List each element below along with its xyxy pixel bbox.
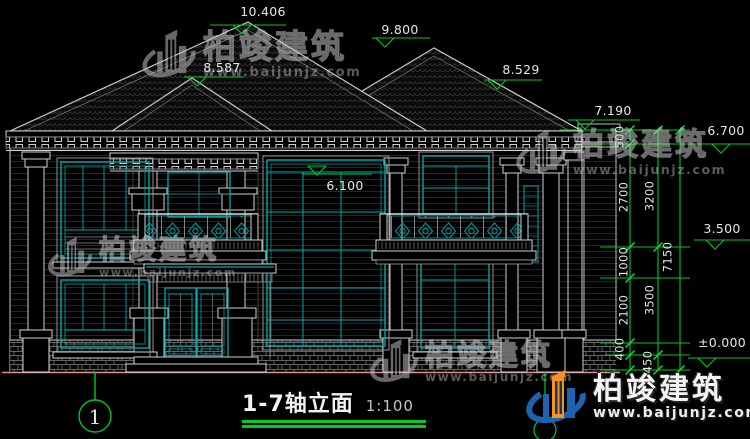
dim-1000: 1000 bbox=[618, 247, 630, 277]
baijun-logo-icon bbox=[140, 26, 198, 84]
baijun-logo-color-icon bbox=[524, 366, 588, 430]
watermark-url: www.baijunjz.com bbox=[573, 162, 726, 177]
main-cornice bbox=[6, 131, 582, 151]
watermark-left: 柏竣建筑 www.baijunjz.com bbox=[46, 234, 237, 282]
elev-label-second-floor: 3.500 bbox=[703, 223, 740, 236]
brand-url: www.baijunjz.com bbox=[593, 405, 750, 422]
watermark-brand: 柏竣建筑 bbox=[203, 30, 361, 65]
dim-400: 400 bbox=[614, 338, 626, 361]
brand-logo-corner: 柏竣建筑 www.baijunjz.com bbox=[524, 366, 750, 430]
elev-label-rear-eave-high: 7.190 bbox=[594, 105, 631, 118]
elev-label-roof-peak-right: 9.800 bbox=[381, 24, 418, 37]
watermark-url: www.baijunjz.com bbox=[203, 65, 361, 81]
title-underline bbox=[242, 420, 426, 423]
axis-number-1: 1 bbox=[89, 405, 102, 429]
baijun-logo-icon bbox=[46, 234, 94, 282]
dim-2700: 2700 bbox=[618, 182, 630, 212]
dim-3200: 3200 bbox=[644, 181, 656, 211]
dim-7150-overall: 7150 bbox=[662, 242, 674, 272]
baijun-logo-icon bbox=[514, 126, 568, 180]
watermark-brand: 柏竣建筑 bbox=[99, 237, 237, 265]
cad-elevation-screenshot: 10.406 9.800 8.587 8.529 7.190 6.700 6.1… bbox=[0, 0, 750, 439]
title-underline-2 bbox=[242, 425, 426, 428]
watermark-brand: 柏竣建筑 bbox=[573, 129, 726, 162]
elev-label-window-head: 6.100 bbox=[326, 180, 363, 193]
elev-label-roof-peak-main: 10.406 bbox=[240, 6, 286, 19]
watermark-top: 柏竣建筑 www.baijunjz.com bbox=[140, 26, 361, 84]
watermark-right: 柏竣建筑 www.baijunjz.com bbox=[514, 126, 726, 180]
drawing-scale: 1:100 bbox=[366, 397, 414, 415]
dim-2100: 2100 bbox=[618, 295, 630, 325]
watermark-url: www.baijunjz.com bbox=[99, 266, 237, 279]
drawing-title: 1-7轴立面 bbox=[242, 394, 354, 416]
brand-name: 柏竣建筑 bbox=[593, 374, 750, 406]
elev-label-roof-slope-right: 8.529 bbox=[502, 64, 539, 77]
baijun-logo-icon bbox=[368, 336, 420, 388]
drawing-title-block: 1-7轴立面 1:100 bbox=[242, 394, 426, 428]
dim-3500: 3500 bbox=[644, 285, 656, 315]
elev-label-ground-floor: ±0.000 bbox=[698, 337, 746, 350]
